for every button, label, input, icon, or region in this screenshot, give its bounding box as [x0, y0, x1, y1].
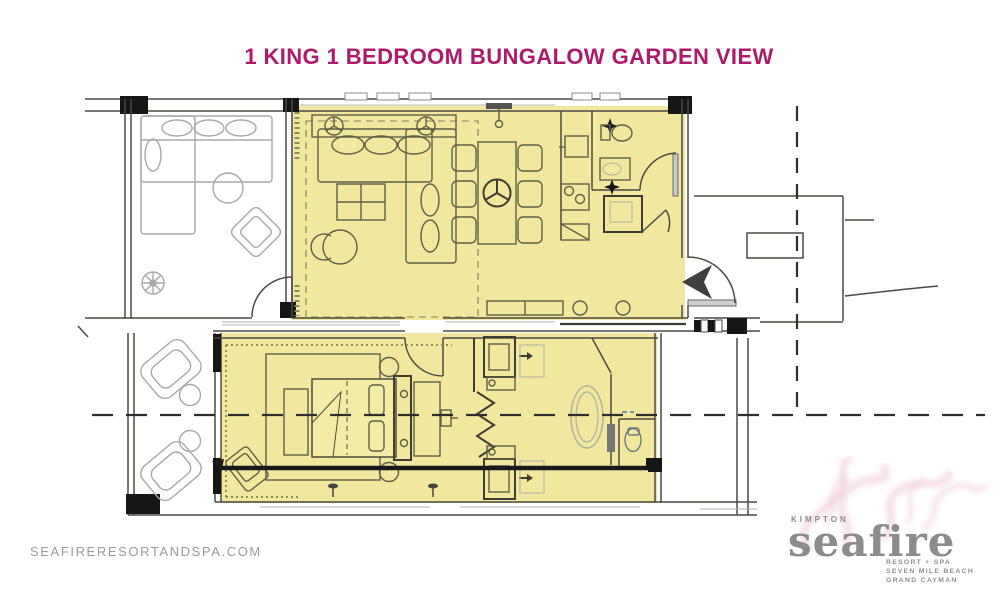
ceiling-fan-icon	[142, 272, 164, 294]
living-wing-highlight	[291, 106, 685, 320]
seafire-logo: KIMPTON seafire RESORT + SPA SEVEN MILE …	[755, 455, 1000, 600]
door-leaf	[673, 154, 678, 196]
garden-terrace	[137, 336, 205, 505]
shower-panel	[607, 424, 615, 452]
resort-name: seafire	[788, 521, 955, 563]
path-edge	[845, 286, 938, 296]
entry-door-leaf	[688, 300, 736, 306]
door-mat	[747, 233, 803, 258]
entry-arrow-icon	[682, 265, 712, 299]
side-table	[180, 385, 201, 406]
wall-hatch	[694, 318, 747, 334]
lounge-chair	[137, 336, 205, 403]
neighbor-round-table	[213, 173, 243, 203]
entry-porch	[682, 196, 938, 334]
website-url: SEAFIRERESORTANDSPA.COM	[30, 544, 262, 559]
neighbor-chair	[229, 205, 283, 259]
tagline-location: GRAND CAYMAN	[886, 576, 974, 585]
neighbor-living-room	[141, 116, 292, 317]
tagline-resort-spa: RESORT + SPA	[886, 558, 974, 567]
floorplan-slide: 1 KING 1 BEDROOM BUNGALOW GARDEN VIEW	[0, 0, 1000, 600]
logo-taglines: RESORT + SPA SEVEN MILE BEACH GRAND CAYM…	[886, 558, 974, 586]
side-table	[180, 431, 201, 452]
bedroom-wing-highlight	[221, 333, 657, 503]
tagline-beach: SEVEN MILE BEACH	[886, 567, 974, 576]
